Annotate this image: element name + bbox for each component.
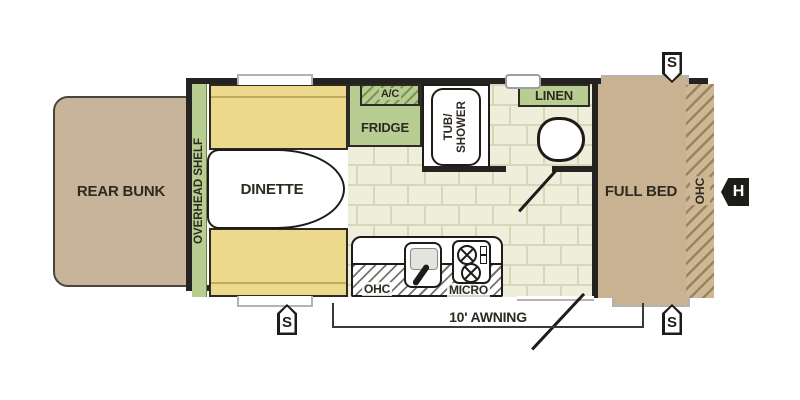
tub-label-line2: SHOWER [456,101,469,153]
window-dinette-bottom [237,296,313,307]
stove-knob [480,255,487,264]
speaker-marker-top: S [662,52,682,83]
toilet [537,117,585,162]
stove-burner [461,263,481,283]
micro-label: MICRO [447,283,490,297]
ohc-bed-label: OHC [690,177,710,206]
ohc-kitchen-label: OHC [362,282,392,296]
awning-label: 10' AWNING [332,309,644,325]
dinette-bench-top [209,84,348,150]
overhead-shelf-label: OVERHEAD SHELF [193,137,205,243]
full-bed-label: FULL BED [596,183,686,200]
entry-door-leaf [517,299,594,301]
bench-seam [211,282,346,284]
window-dinette-top [237,74,313,85]
linen-label: LINEN [518,88,590,103]
tub-shower: TUB/ SHOWER [431,88,481,166]
overhead-cabinet-bed: OHC [686,84,714,298]
dinette-label: DINETTE [222,181,322,198]
kitchen-sink [404,242,442,288]
speaker-marker-bottom-right: S [662,304,682,335]
overhead-shelf-area: OVERHEAD SHELF [192,84,207,297]
stove-cooktop [452,240,491,284]
floorplan-canvas: REAR BUNK OVERHEAD SHELF DINETTE FRIDGE … [0,0,800,400]
entry-door-opening [517,296,594,306]
fridge-label: FRIDGE [348,120,422,135]
speaker-marker-bottom-left: S [277,304,297,335]
bench-seam [211,96,346,98]
tub-label-line1: TUB/ [443,101,456,153]
stove-burner [457,245,477,265]
dinette-bench-bottom [209,228,348,297]
hookup-marker: H [721,178,749,206]
stove-knob [480,246,487,255]
bathroom-wall-bottom-left [422,166,506,172]
rear-bunk-label: REAR BUNK [68,183,174,200]
ac-label: A/C [360,88,420,100]
roof-vent [505,74,541,89]
awning-bracket-line [332,326,644,328]
